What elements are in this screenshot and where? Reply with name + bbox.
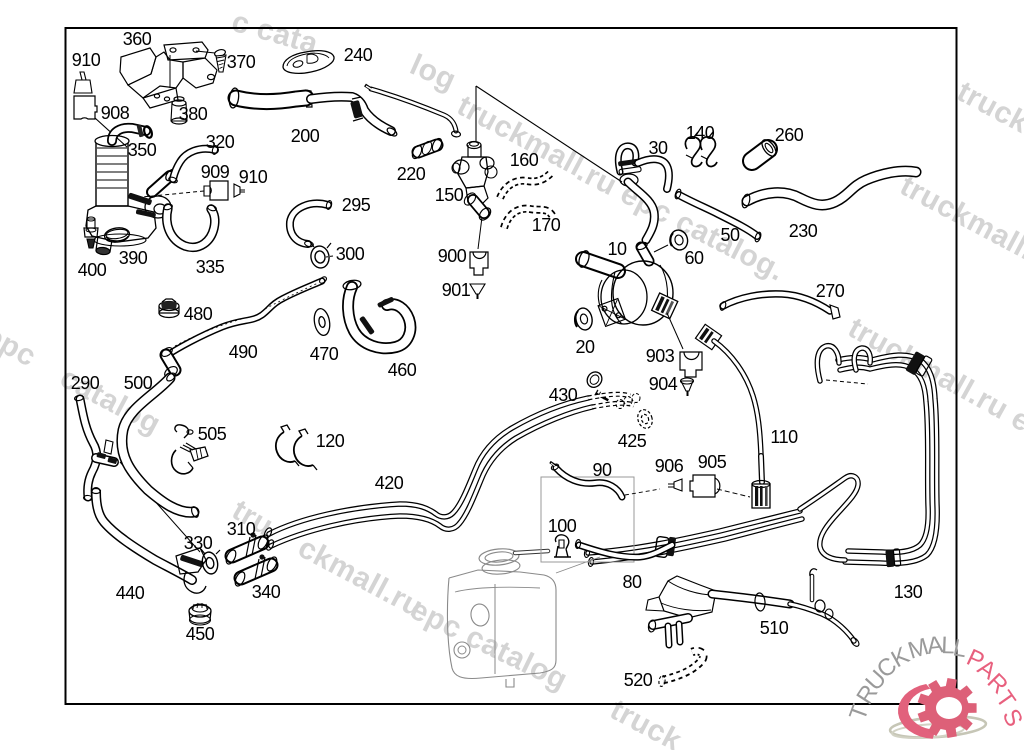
svg-text:20: 20 [575, 337, 595, 357]
svg-text:270: 270 [816, 281, 845, 301]
svg-text:370: 370 [227, 52, 256, 72]
svg-text:430: 430 [549, 385, 578, 405]
svg-text:480: 480 [184, 304, 213, 324]
svg-text:260: 260 [775, 125, 804, 145]
svg-text:295: 295 [342, 195, 371, 215]
svg-text:350: 350 [128, 140, 157, 160]
svg-text:310: 310 [227, 519, 256, 539]
svg-text:901: 901 [442, 280, 471, 300]
svg-text:130: 130 [894, 582, 923, 602]
svg-text:30: 30 [648, 138, 668, 158]
svg-text:470: 470 [310, 344, 339, 364]
svg-text:60: 60 [684, 248, 704, 268]
svg-text:520: 520 [624, 670, 653, 690]
svg-text:390: 390 [119, 248, 148, 268]
svg-text:230: 230 [789, 221, 818, 241]
svg-text:909: 909 [201, 162, 230, 182]
svg-text:460: 460 [388, 360, 417, 380]
svg-text:140: 140 [686, 123, 715, 143]
svg-text:320: 320 [206, 132, 235, 152]
svg-text:908: 908 [101, 103, 130, 123]
svg-text:450: 450 [186, 624, 215, 644]
svg-text:500: 500 [124, 373, 153, 393]
svg-text:490: 490 [229, 342, 258, 362]
svg-text:425: 425 [618, 431, 647, 451]
svg-text:300: 300 [336, 244, 365, 264]
svg-text:220: 220 [397, 164, 426, 184]
svg-text:240: 240 [344, 45, 373, 65]
svg-text:10: 10 [607, 239, 627, 259]
svg-text:906: 906 [655, 456, 684, 476]
svg-text:90: 90 [592, 460, 612, 480]
svg-text:505: 505 [198, 424, 227, 444]
svg-text:904: 904 [649, 374, 678, 394]
svg-text:900: 900 [438, 246, 467, 266]
svg-text:50: 50 [720, 225, 740, 245]
svg-text:160: 160 [510, 150, 539, 170]
svg-text:290: 290 [71, 373, 100, 393]
svg-text:903: 903 [646, 346, 675, 366]
svg-text:335: 335 [196, 257, 225, 277]
svg-text:340: 340 [252, 582, 281, 602]
svg-text:150: 150 [435, 185, 464, 205]
svg-text:905: 905 [698, 452, 727, 472]
svg-text:100: 100 [548, 516, 577, 536]
svg-text:200: 200 [291, 126, 320, 146]
svg-text:420: 420 [375, 473, 404, 493]
svg-text:360: 360 [123, 29, 152, 49]
svg-text:380: 380 [179, 104, 208, 124]
svg-text:170: 170 [532, 215, 561, 235]
svg-text:910: 910 [239, 167, 268, 187]
svg-text:110: 110 [770, 427, 798, 447]
svg-text:510: 510 [760, 618, 789, 638]
svg-text:330: 330 [184, 533, 213, 553]
svg-text:440: 440 [116, 583, 145, 603]
svg-text:120: 120 [316, 431, 345, 451]
svg-text:400: 400 [78, 260, 107, 280]
svg-text:910: 910 [72, 50, 101, 70]
svg-text:80: 80 [622, 572, 642, 592]
